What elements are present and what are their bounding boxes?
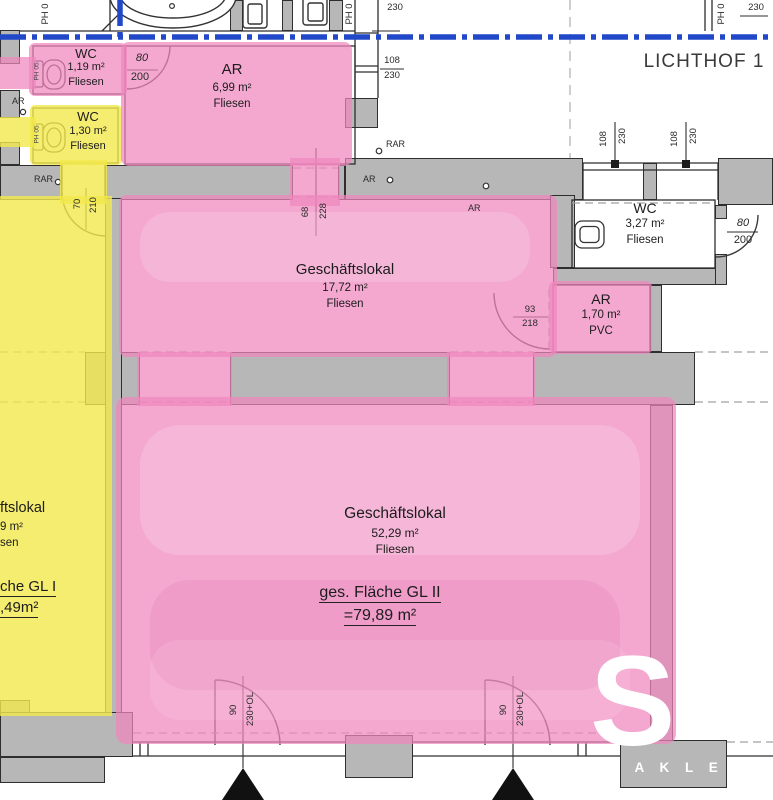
dim-80: 80 xyxy=(126,53,158,65)
wall-segment xyxy=(338,165,345,200)
wall-segment xyxy=(329,0,343,31)
wall-segment xyxy=(105,165,293,200)
pillar xyxy=(345,735,413,778)
dim-93: 93 xyxy=(514,305,546,315)
highlight-corridor xyxy=(60,160,107,204)
dim-228: 228 xyxy=(319,191,329,231)
room-label-wc119-floor: Fliesen xyxy=(56,77,116,89)
room-label-wc130-area: 1,30 m² xyxy=(58,126,118,138)
dim-230: 230 xyxy=(380,71,404,81)
wall-segment xyxy=(345,158,583,200)
total-gl1-value: ,49m² xyxy=(0,600,38,618)
room-label-gl1-floor: sen xyxy=(0,537,19,549)
wall-segment xyxy=(718,158,773,205)
dim-108: 108 xyxy=(380,56,404,66)
dim-230: 230 xyxy=(689,116,699,156)
total-gl2-value: =79,89 m² xyxy=(295,608,465,625)
dim-ph05: PH 05 xyxy=(35,114,42,154)
annotation-rar: RAR xyxy=(386,140,405,149)
wall-segment xyxy=(715,254,727,285)
total-gl1-label: che GL I xyxy=(0,579,56,597)
room-label-wc130-name: WC xyxy=(58,110,118,124)
room-label-ar170-floor: PVC xyxy=(566,325,636,337)
annotation-rar: RAR xyxy=(34,175,53,184)
dim-200: 200 xyxy=(726,235,760,247)
floor-plan: LICHTHOF 1 WC 1,19 m² Fliesen AR 6,99 m²… xyxy=(0,0,773,800)
room-label-wc119-area: 1,19 m² xyxy=(56,62,116,74)
dim-70: 70 xyxy=(73,184,83,224)
dim-230: 230 xyxy=(618,116,628,156)
wall-segment xyxy=(282,0,293,31)
wall-segment xyxy=(0,712,133,757)
room-label-ar699-area: 6,99 m² xyxy=(197,82,267,94)
highlight-gl5229 xyxy=(116,397,676,744)
bathtub-icon xyxy=(110,0,236,28)
room-label-wc130-floor: Fliesen xyxy=(58,141,118,153)
dim-90: 90 xyxy=(229,690,239,730)
room-label-gl5229-area: 52,29 m² xyxy=(315,527,475,540)
highlight-stem xyxy=(447,352,535,406)
room-label-ar170-area: 1,70 m² xyxy=(566,309,636,321)
room-label-gl5229-name: Geschäftslokal xyxy=(315,506,475,522)
highlight-stem xyxy=(290,158,340,206)
room-label-wc327-area: 3,27 m² xyxy=(615,218,675,230)
dim-108: 108 xyxy=(599,119,609,159)
annotation-ar: AR xyxy=(12,97,25,106)
wall-segment xyxy=(553,268,727,285)
total-gl2-label-text: ges. Fläche GL II xyxy=(319,584,440,603)
dim-68: 68 xyxy=(301,192,311,232)
marker-streak xyxy=(150,640,630,720)
room-label-wc327-name: WC xyxy=(615,201,675,216)
wall-segment xyxy=(650,405,673,742)
dim-210: 210 xyxy=(89,185,99,225)
wall-segment xyxy=(715,205,727,219)
highlight-stem xyxy=(137,352,232,406)
room-label-ar170-name: AR xyxy=(566,292,636,307)
wall-segment xyxy=(345,98,378,128)
annotation-ar: AR xyxy=(363,175,376,184)
dim-ph05: PH 05 xyxy=(35,51,42,91)
wall-segment xyxy=(0,757,105,783)
room-label-ar699-floor: Fliesen xyxy=(197,98,267,110)
room-label-gl1772-floor: Fliesen xyxy=(265,298,425,310)
dim-108: 108 xyxy=(670,119,680,159)
room-label-gl1772-area: 17,72 m² xyxy=(265,282,425,294)
dim-ph0: PH 0 xyxy=(41,0,51,34)
dim-ph0: PH 0 xyxy=(717,0,727,34)
dim-200: 200 xyxy=(124,72,156,84)
dim-230: 230 xyxy=(382,3,408,13)
dim-230: 230 xyxy=(742,3,770,13)
dim-218: 218 xyxy=(514,319,546,329)
wall-segment xyxy=(105,198,122,718)
window-mullion xyxy=(643,163,657,200)
wall-segment xyxy=(0,30,20,64)
annotation-ar: AR xyxy=(468,204,481,213)
highlight-gl1 xyxy=(0,196,112,716)
room-label-ar699-name: AR xyxy=(197,62,267,78)
dim-ph0: PH 0 xyxy=(345,0,355,34)
toilet-icon xyxy=(575,221,604,248)
room-label-wc327-floor: Fliesen xyxy=(615,234,675,246)
wall-segment xyxy=(230,352,450,405)
lichthof-label: LICHTHOF 1 xyxy=(636,52,772,72)
wall-segment xyxy=(650,285,662,352)
total-gl2-value-text: =79,89 m² xyxy=(344,607,416,626)
wall-segment xyxy=(230,0,243,31)
room-label-wc119-name: WC xyxy=(56,47,116,61)
room-label-gl1772-name: Geschäftslokal xyxy=(265,262,425,278)
wall-segment xyxy=(620,740,727,788)
room-label-gl1-area: 9 m² xyxy=(0,521,23,533)
wall-segment xyxy=(0,142,20,165)
dim-230ol: 230+OL xyxy=(516,679,526,739)
dim-80: 80 xyxy=(728,218,758,230)
total-gl2-label: ges. Fläche GL II xyxy=(295,585,465,602)
wall-segment xyxy=(533,352,695,405)
room-label-gl5229-floor: Fliesen xyxy=(315,543,475,556)
dim-90: 90 xyxy=(499,690,509,730)
dim-230ol: 230+OL xyxy=(246,679,256,739)
wall-segment xyxy=(550,195,575,268)
room-label-gl1-name: ftslokal xyxy=(0,501,45,516)
